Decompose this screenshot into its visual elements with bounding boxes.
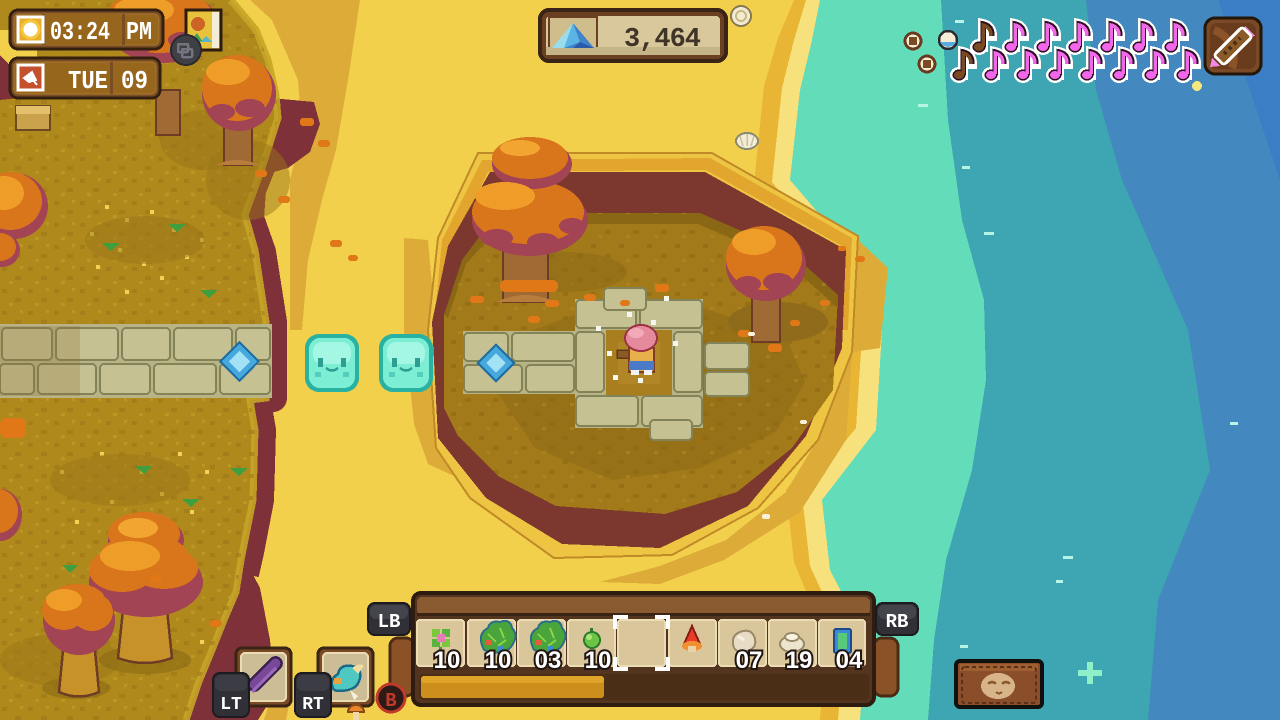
svg-text:TUE: TUE bbox=[68, 66, 108, 96]
svg-text:10: 10 bbox=[434, 647, 461, 674]
svg-text:PM: PM bbox=[126, 17, 152, 47]
svg-text:RT: RT bbox=[302, 695, 324, 715]
svg-text:RB: RB bbox=[886, 611, 909, 633]
svg-text:LB: LB bbox=[378, 611, 401, 633]
svg-text:3,464: 3,464 bbox=[624, 25, 701, 55]
svg-text:03:24: 03:24 bbox=[50, 17, 110, 47]
svg-text:19: 19 bbox=[786, 647, 813, 674]
svg-text:10: 10 bbox=[485, 647, 512, 674]
svg-text:07: 07 bbox=[736, 647, 763, 674]
svg-text:09: 09 bbox=[121, 66, 148, 96]
svg-text:LT: LT bbox=[220, 695, 242, 715]
svg-text:03: 03 bbox=[535, 647, 562, 674]
svg-text:B: B bbox=[385, 690, 396, 712]
svg-text:04: 04 bbox=[836, 647, 863, 674]
svg-text:10: 10 bbox=[585, 647, 612, 674]
